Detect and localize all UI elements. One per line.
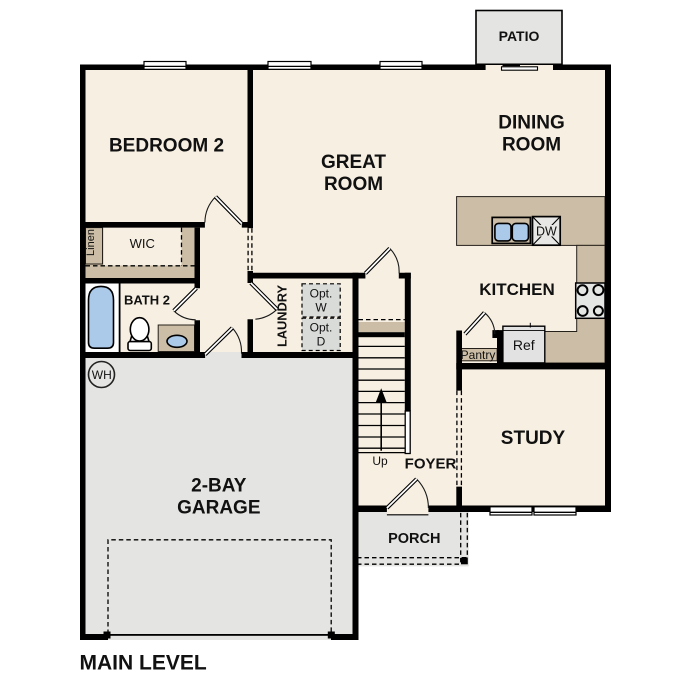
svg-text:Opt.: Opt. bbox=[310, 321, 333, 335]
svg-text:FOYER: FOYER bbox=[405, 456, 457, 473]
svg-text:Opt.: Opt. bbox=[310, 287, 333, 301]
svg-text:DINING: DINING bbox=[498, 113, 565, 134]
svg-text:D: D bbox=[317, 335, 326, 349]
svg-text:KITCHEN: KITCHEN bbox=[479, 280, 555, 299]
svg-text:STUDY: STUDY bbox=[501, 428, 566, 449]
svg-text:WH: WH bbox=[92, 368, 112, 382]
svg-text:Ref: Ref bbox=[513, 337, 535, 353]
svg-text:Linen: Linen bbox=[85, 229, 97, 256]
svg-text:Pantry: Pantry bbox=[461, 348, 496, 362]
svg-text:BATH 2: BATH 2 bbox=[124, 293, 170, 308]
svg-text:LAUNDRY: LAUNDRY bbox=[275, 284, 290, 347]
svg-text:GREAT: GREAT bbox=[321, 152, 386, 173]
svg-text:GARAGE: GARAGE bbox=[177, 498, 260, 519]
svg-text:Up: Up bbox=[372, 454, 388, 468]
svg-text:PORCH: PORCH bbox=[388, 531, 440, 547]
svg-text:MAIN LEVEL: MAIN LEVEL bbox=[80, 652, 207, 675]
svg-text:BEDROOM 2: BEDROOM 2 bbox=[109, 136, 224, 157]
svg-text:2-BAY: 2-BAY bbox=[191, 476, 247, 497]
svg-text:PATIO: PATIO bbox=[499, 28, 540, 44]
svg-text:W: W bbox=[315, 301, 327, 315]
svg-text:WIC: WIC bbox=[130, 236, 155, 251]
svg-text:ROOM: ROOM bbox=[324, 174, 383, 195]
svg-text:DW: DW bbox=[536, 225, 557, 239]
svg-text:ROOM: ROOM bbox=[502, 135, 561, 156]
